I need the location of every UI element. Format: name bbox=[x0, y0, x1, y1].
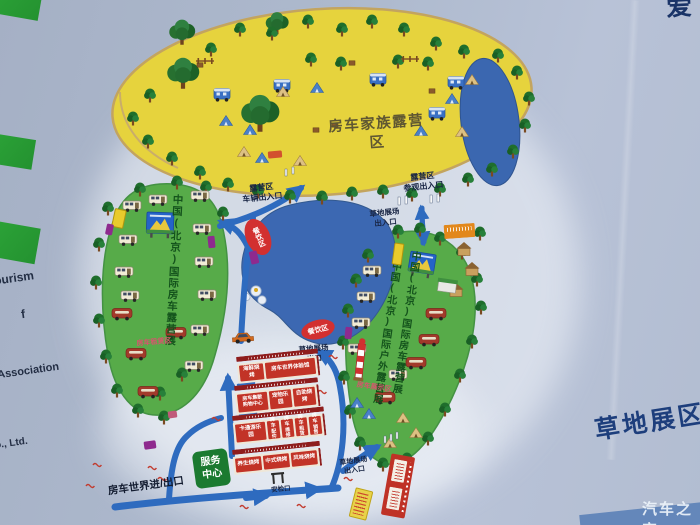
map-illustration bbox=[0, 0, 700, 525]
building-block: 房车集散 购物中心 bbox=[237, 391, 269, 412]
service-center-badge: 服务 中心 bbox=[192, 448, 232, 490]
park-map-sign-photo: ourism f Association o., Ltd. bbox=[0, 0, 700, 525]
info-sign-panel bbox=[386, 487, 403, 511]
building-block: 卡通游乐园 bbox=[235, 421, 267, 442]
building-block: 风味烧烤 bbox=[291, 450, 318, 467]
purple-tag bbox=[344, 327, 352, 340]
building-block: 房车 租赁 bbox=[295, 417, 309, 436]
pink-tag bbox=[168, 410, 178, 418]
building-block: 房车 配件 bbox=[267, 420, 281, 439]
building-block: 房车 维修 bbox=[281, 418, 295, 437]
purple-tag bbox=[144, 440, 157, 450]
building-block: 房车 销售 bbox=[308, 415, 322, 434]
purple-tag bbox=[207, 236, 215, 249]
shed-icon bbox=[436, 278, 458, 294]
corner-glyph: 爱 bbox=[665, 0, 693, 24]
orange-sign bbox=[444, 223, 476, 239]
small-red-tag bbox=[268, 150, 283, 158]
building-block: 房车世界体验馆 bbox=[265, 357, 316, 378]
building-block: 宠物乐园 bbox=[269, 389, 293, 409]
building-block: 自助烧烤 bbox=[293, 386, 317, 406]
building-block: 中式烧烤 bbox=[263, 453, 290, 470]
building-block: 养生烧烤 bbox=[235, 456, 262, 473]
building-block: 海鲜烧烤 bbox=[239, 363, 265, 381]
camp-area-title-label: 房车家族露营区 bbox=[321, 111, 433, 156]
watermark: 汽车之家 bbox=[642, 498, 700, 525]
info-sign-panel bbox=[391, 459, 408, 483]
